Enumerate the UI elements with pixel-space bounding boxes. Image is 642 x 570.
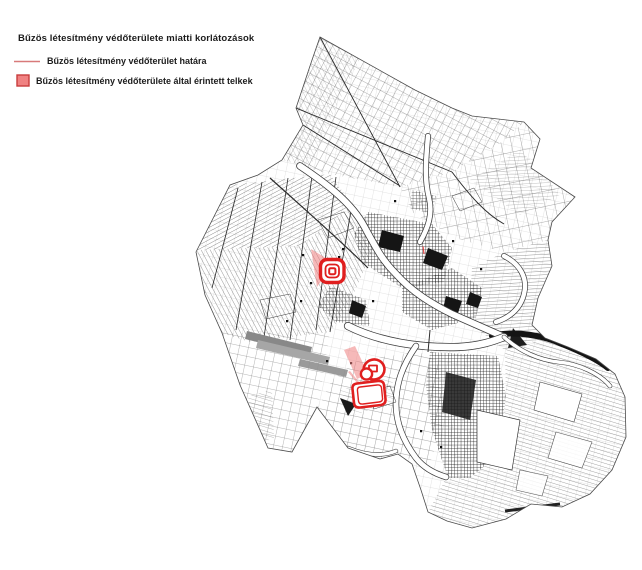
legend-title: Bűzös létesítmény védőterülete miatti ko… [18, 33, 254, 44]
map-texture [190, 30, 635, 540]
legend: Bűzös létesítmény védőterülete miatti ko… [0, 33, 254, 95]
southwest-strip-patch [248, 390, 274, 446]
page: Bűzös létesítmény védőterülete miatti ko… [0, 0, 642, 570]
large-open-parcel [477, 410, 520, 470]
affected-parcel-icon [16, 74, 30, 87]
legend-item-boundary: Bűzös létesítmény védőterület határa [13, 56, 254, 66]
south-dense-core [442, 372, 476, 420]
boundary-line-icon [13, 58, 41, 65]
legend-label-boundary: Bűzös létesítmény védőterület határa [47, 56, 207, 66]
legend-item-parcels: Bűzös létesítmény védőterülete által éri… [16, 74, 254, 87]
legend-label-parcels: Bűzös létesítmény védőterülete által éri… [36, 76, 253, 86]
